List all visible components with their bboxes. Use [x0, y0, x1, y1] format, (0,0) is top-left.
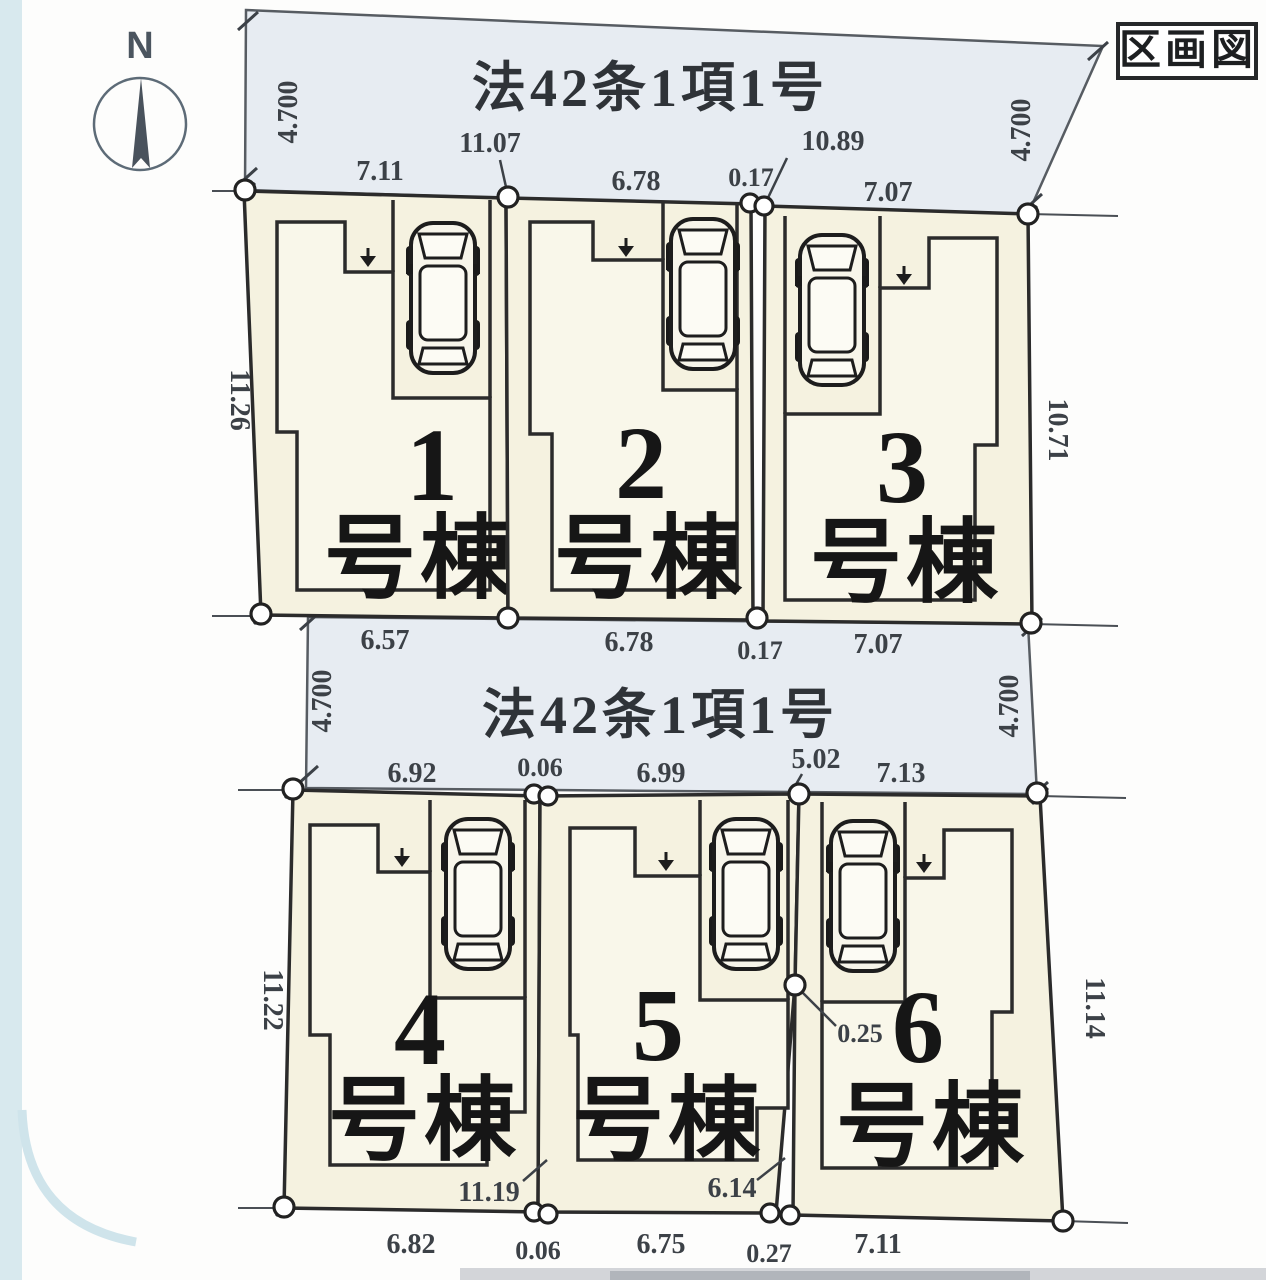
- lot-4: 4 号棟: [284, 790, 540, 1212]
- lot-5: 5 号棟: [538, 794, 799, 1213]
- lot-4-car-icon: [441, 819, 515, 969]
- dim-row1-right-10-71: 10.71: [1042, 399, 1073, 462]
- survey-point: [1053, 1211, 1073, 1231]
- dim-mid-7-13: 7.13: [877, 758, 926, 789]
- lot-2: 2 号棟: [506, 198, 753, 620]
- survey-point: [747, 608, 767, 628]
- dim-mid-5-02: 5.02: [792, 744, 841, 775]
- lot-1-suffix: 号棟: [324, 508, 516, 610]
- road-middle-width-right: 4.700: [994, 675, 1025, 738]
- road-top-width-left: 4.700: [273, 81, 304, 144]
- survey-point: [785, 975, 805, 995]
- survey-point: [1027, 783, 1047, 803]
- lot-6-number: 6: [892, 970, 944, 1085]
- lot-1-car-icon: [406, 223, 480, 373]
- dim-mid-6-99: 6.99: [637, 758, 686, 789]
- lot-2-car-icon: [666, 219, 740, 369]
- lot-3-number: 3: [876, 410, 928, 525]
- title-box: 区画図: [1118, 24, 1257, 78]
- dim-row1-bottom-0-17: 0.17: [737, 636, 783, 665]
- survey-point: [789, 784, 809, 804]
- dim-row2-bottom-0-27: 0.27: [746, 1239, 792, 1268]
- dim-row2-6-14: 6.14: [708, 1173, 757, 1204]
- dim-row1-bottom-7-07: 7.07: [854, 629, 903, 660]
- dim-top-6-78: 6.78: [612, 166, 661, 197]
- survey-point: [781, 1206, 799, 1224]
- lot-6-car-icon: [826, 821, 900, 971]
- left-blue-strip: [0, 0, 22, 1280]
- north-compass-icon: N: [94, 25, 186, 170]
- dim-row2-bottom-7-11: 7.11: [854, 1229, 901, 1260]
- dim-row2-bottom-6-75: 6.75: [637, 1229, 686, 1260]
- dim-mid-0-06: 0.06: [517, 753, 563, 782]
- lot-2-suffix: 号棟: [554, 508, 746, 610]
- dim-row2-right-11-14: 11.14: [1079, 977, 1110, 1038]
- dim-row2-left-11-22: 11.22: [257, 969, 288, 1030]
- site-plan-figure: N 区画図 法42条1項1号 法42条1項1号 4.700 4.700 4.70…: [0, 0, 1266, 1280]
- survey-point: [235, 180, 255, 200]
- dim-mid-6-92: 6.92: [388, 758, 437, 789]
- lot-6: 6 号棟: [793, 794, 1063, 1221]
- dim-top-11-07: 11.07: [459, 128, 520, 159]
- road-middle-label: 法42条1項1号: [482, 685, 838, 745]
- survey-point: [274, 1197, 294, 1217]
- dim-row1-left-11-26: 11.26: [224, 369, 255, 430]
- survey-point: [498, 187, 518, 207]
- compass-north-label: N: [126, 25, 153, 67]
- road-top-label: 法42条1項1号: [472, 58, 828, 118]
- bottom-photo-edge-dark: [610, 1271, 1030, 1280]
- dim-top-0-17: 0.17: [728, 163, 774, 192]
- survey-point: [1021, 613, 1041, 633]
- rounded-corner-line: [22, 1110, 136, 1242]
- dim-top-7-07: 7.07: [864, 177, 913, 208]
- lot-3-car-icon: [795, 235, 869, 385]
- dim-top-7-11: 7.11: [356, 156, 403, 187]
- survey-point: [539, 787, 557, 805]
- dim-row2-11-19: 11.19: [458, 1177, 519, 1208]
- lot-4-suffix: 号棟: [328, 1070, 520, 1172]
- lot-5-car-icon: [709, 819, 783, 969]
- dim-row2-bottom-0-06: 0.06: [515, 1236, 561, 1265]
- survey-point: [498, 608, 518, 628]
- dim-row2-0-25: 0.25: [837, 1019, 883, 1048]
- lot-5-suffix: 号棟: [572, 1070, 764, 1172]
- lot-1: 1 号棟: [244, 191, 516, 618]
- lot-5-number: 5: [632, 968, 684, 1083]
- road-top-width-right: 4.700: [1006, 99, 1037, 162]
- page-title: 区画図: [1119, 28, 1257, 74]
- dim-top-10-89: 10.89: [802, 126, 865, 157]
- lot-6-suffix: 号棟: [836, 1076, 1028, 1178]
- compass-needle: [132, 78, 150, 168]
- survey-point: [283, 779, 303, 799]
- dim-row2-bottom-6-82: 6.82: [387, 1229, 436, 1260]
- dim-row1-bottom-6-57: 6.57: [361, 625, 410, 656]
- survey-point: [1018, 204, 1038, 224]
- plot-map-page: N 区画図 法42条1項1号 法42条1項1号 4.700 4.700 4.70…: [0, 0, 1266, 1280]
- survey-point: [761, 1204, 779, 1222]
- survey-point: [251, 604, 271, 624]
- survey-point: [755, 197, 773, 215]
- survey-point: [539, 1205, 557, 1223]
- road-middle-width-left: 4.700: [307, 670, 338, 733]
- lot-3: 3 号棟: [763, 206, 1032, 624]
- dim-row1-bottom-6-78: 6.78: [605, 627, 654, 658]
- lot-1-number: 1: [406, 408, 458, 523]
- lot-3-suffix: 号棟: [810, 512, 1002, 614]
- lot-2-number: 2: [615, 406, 667, 521]
